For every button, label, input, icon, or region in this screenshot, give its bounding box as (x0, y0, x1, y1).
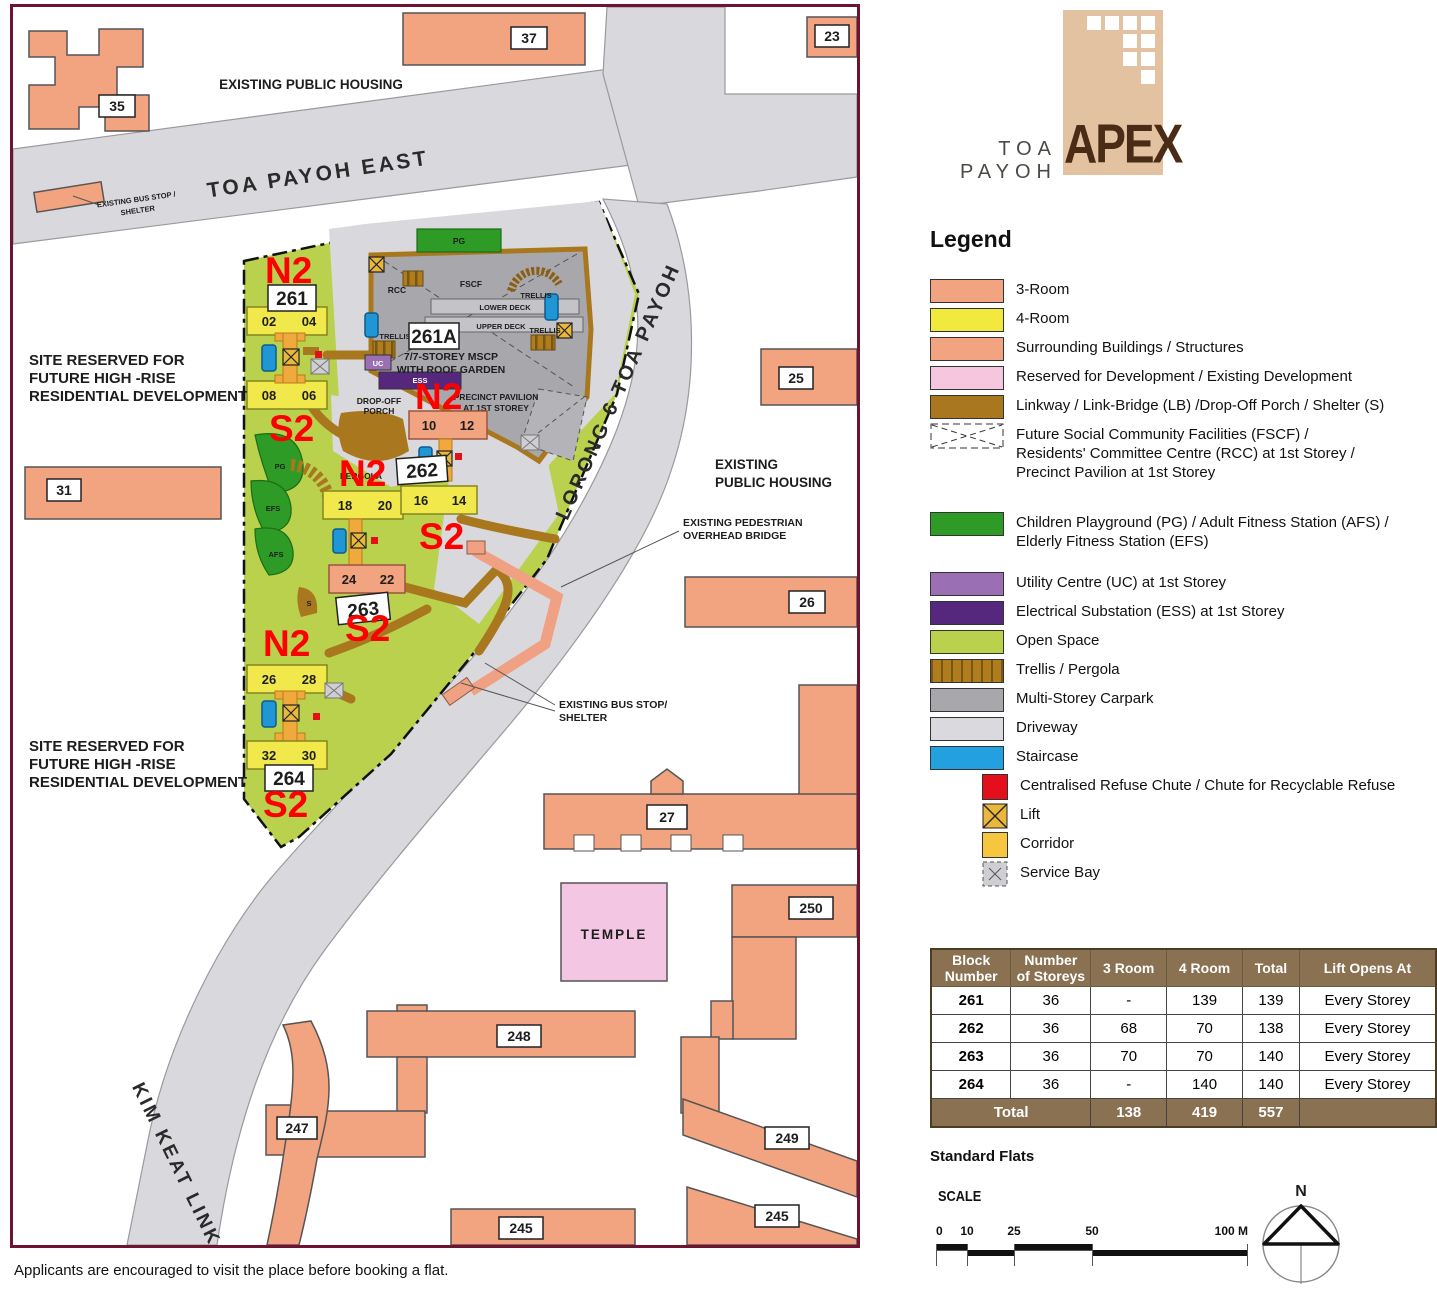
pg-label: PG (275, 462, 286, 471)
legend-item-surrounding: Surrounding Buildings / Structures (930, 336, 1436, 365)
uc-label: UC (373, 359, 384, 368)
north-arrow: N (1252, 1180, 1352, 1290)
refuse-chute-icon (313, 713, 320, 720)
swatch-fscf-dashed-icon (930, 423, 1004, 449)
svg-text:262: 262 (406, 460, 439, 483)
svg-text:EXISTING BUS STOP/: EXISTING BUS STOP/ (559, 699, 667, 711)
building-37-chip: 37 (511, 27, 547, 49)
legend-item-trellis: Trellis / Pergola (930, 658, 1436, 687)
flat-count-table: Block Number Number of Storeys 3 Room 4 … (930, 948, 1437, 1128)
unit-22: 22 (380, 572, 394, 587)
legend-item-uc: Utility Centre (UC) at 1st Storey (930, 571, 1436, 600)
unit-06: 06 (302, 388, 316, 403)
svg-text:250: 250 (799, 900, 823, 916)
legend-item-staircase: Staircase (930, 745, 1436, 774)
svg-text:OVERHEAD BRIDGE: OVERHEAD BRIDGE (683, 530, 786, 542)
afs-label: AFS (269, 550, 284, 559)
trellis-label: TRELLIS (379, 332, 410, 341)
swatch-trellis (930, 659, 1004, 683)
building-245-right-chip: 245 (755, 1205, 799, 1227)
scale-bar: 0 10 25 50 100 M (936, 1224, 1248, 1270)
header-block-number: Block Number (931, 949, 1011, 987)
site-plan-map: FSCF RCC TRELLIS LOWER DECK UPPER DECK T… (10, 4, 860, 1248)
rcc-label: RCC (388, 285, 406, 295)
unit-20: 20 (378, 498, 392, 513)
site-reserved-label-upper: SITE RESERVED FOR FUTURE HIGH -RISE RESI… (29, 352, 247, 405)
building-248-chip: 248 (497, 1025, 541, 1047)
legend-item-playground: Children Playground (PG) / Adult Fitness… (930, 511, 1436, 571)
logo-name: APEX (1064, 112, 1164, 176)
building-27-chip: 27 (647, 805, 687, 829)
unit-08: 08 (262, 388, 276, 403)
swatch-linkway (930, 395, 1004, 419)
svg-text:27: 27 (659, 809, 675, 825)
staircase-icon (262, 345, 276, 371)
logo-prefix: TOA PAYOH (905, 138, 1057, 184)
legend-item-ess: Electrical Substation (ESS) at 1st Store… (930, 600, 1436, 629)
legend-item-linkway: Linkway / Link-Bridge (LB) /Drop-Off Por… (930, 394, 1436, 423)
svg-text:37: 37 (521, 30, 537, 46)
svg-text:DROP-OFF: DROP-OFF (357, 396, 401, 406)
svg-text:SITE RESERVED FOR: SITE RESERVED FOR (29, 352, 185, 369)
svg-text:261: 261 (276, 289, 308, 310)
svg-text:PUBLIC HOUSING: PUBLIC HOUSING (715, 475, 832, 490)
legend-item-driveway: Driveway (930, 716, 1436, 745)
svg-text:FUTURE HIGH -RISE: FUTURE HIGH -RISE (29, 370, 176, 387)
red-label-s2: S2 (419, 516, 464, 557)
red-label-n2: N2 (265, 250, 312, 291)
pg-label: PG (453, 236, 466, 246)
legend: 3-Room 4-Room Surrounding Buildings / St… (930, 278, 1436, 890)
svg-text:SITE RESERVED FOR: SITE RESERVED FOR (29, 738, 185, 755)
svg-text:EXISTING PEDESTRIAN: EXISTING PEDESTRIAN (683, 517, 803, 529)
temple-label: TEMPLE (581, 927, 648, 942)
svg-text:249: 249 (775, 1130, 799, 1146)
swatch-mscp (930, 688, 1004, 712)
lower-deck-label: LOWER DECK (479, 303, 531, 312)
swatch-uc (930, 572, 1004, 596)
efs-label: EFS (266, 504, 281, 513)
scale-tick-100m: 100 M (1215, 1224, 1248, 1238)
pedestrian-bridge-label: EXISTING PEDESTRIAN OVERHEAD BRIDGE (683, 517, 803, 542)
mscp-label-line2: WITH ROOF GARDEN (397, 364, 506, 376)
swatch-open-space (930, 630, 1004, 654)
svg-text:SHELTER: SHELTER (559, 712, 608, 724)
swatch-surrounding (930, 337, 1004, 361)
scale-tick-25: 25 (1007, 1224, 1020, 1238)
unit-26: 26 (262, 672, 276, 687)
table-row: 262366870138Every Storey (931, 1015, 1436, 1043)
service-bay-icon (521, 435, 539, 450)
legend-item-open-space: Open Space (930, 629, 1436, 658)
legend-item-mscp: Multi-Storey Carpark (930, 687, 1436, 716)
scale-tick-50: 50 (1085, 1224, 1098, 1238)
unit-04: 04 (302, 314, 317, 329)
precinct-pavilion-line1: PRECINCT PAVILION (454, 392, 539, 402)
swatch-corridor (982, 832, 1008, 858)
swatch-staircase (930, 746, 1004, 770)
logo-squares-icon (1063, 10, 1163, 90)
table-row: 26436-140140Every Storey (931, 1071, 1436, 1099)
staircase-icon (333, 529, 346, 553)
header-lift-opens-at: Lift Opens At (1299, 949, 1436, 987)
site-reserved-label-lower: SITE RESERVED FOR FUTURE HIGH -RISE RESI… (29, 738, 247, 791)
building-25-chip: 25 (779, 367, 813, 389)
staircase-icon (262, 701, 276, 727)
svg-text:RESIDENTIAL DEVELOPMENT: RESIDENTIAL DEVELOPMENT (29, 774, 247, 791)
unit-30: 30 (302, 748, 316, 763)
building-26-chip: 26 (789, 591, 825, 613)
swatch-lift-x-icon (982, 803, 1008, 829)
north-label: N (1295, 1183, 1307, 1200)
scale-tick-0: 0 (936, 1224, 943, 1238)
building-250-chip: 250 (789, 897, 833, 919)
mscp-label-line1: 7/7-STOREY MSCP (404, 351, 498, 363)
building-23-chip: 23 (815, 25, 849, 47)
legend-title: Legend (930, 226, 1012, 253)
swatch-reserved (930, 366, 1004, 390)
svg-text:245: 245 (765, 1208, 789, 1224)
red-label-s2: S2 (345, 608, 390, 649)
unit-14: 14 (452, 493, 467, 508)
bus-stop-bridge-label: EXISTING BUS STOP/ SHELTER (559, 699, 667, 724)
unit-32: 32 (262, 748, 276, 763)
lift-icon (283, 349, 299, 365)
trellis-box-right (531, 335, 555, 350)
shelter-box (403, 271, 423, 286)
s-label: S (306, 599, 311, 608)
lift-icon (283, 705, 299, 721)
legend-item-3-room: 3-Room (930, 278, 1436, 307)
svg-text:25: 25 (788, 370, 804, 386)
trellis-label: TRELLIS (520, 291, 551, 300)
block-261a-label: 261A (411, 327, 457, 348)
swatch-4-room (930, 308, 1004, 332)
scale-label: SCALE (938, 1188, 981, 1205)
building-249-chip: 249 (765, 1127, 809, 1149)
trellis-label: TRELLIS (529, 326, 560, 335)
block-262-chip: 262 (396, 455, 448, 484)
legend-item-reserved: Reserved for Development / Existing Deve… (930, 365, 1436, 394)
scale-tick-10: 10 (960, 1224, 973, 1238)
legend-item-lift: Lift (930, 803, 1436, 832)
red-label-n2: N2 (339, 453, 386, 494)
service-bay-icon (311, 359, 329, 374)
refuse-chute-icon (371, 537, 378, 544)
footer-note: Applicants are encouraged to visit the p… (14, 1262, 448, 1279)
svg-text:31: 31 (56, 482, 72, 498)
lift-icon (351, 533, 366, 548)
unit-24: 24 (342, 572, 357, 587)
legend-item-4-room: 4-Room (930, 307, 1436, 336)
swatch-service-bay-icon (982, 861, 1008, 887)
svg-text:PORCH: PORCH (364, 406, 395, 416)
standard-flats-label: Standard Flats (930, 1148, 1034, 1165)
table-header-row: Block Number Number of Storeys 3 Room 4 … (931, 949, 1436, 987)
unit-18: 18 (338, 498, 352, 513)
table-row: 263367070140Every Storey (931, 1043, 1436, 1071)
building-247-chip: 247 (277, 1117, 317, 1139)
red-label-n2: N2 (263, 623, 310, 664)
header-4-room: 4 Room (1167, 949, 1243, 987)
site-plan-svg: FSCF RCC TRELLIS LOWER DECK UPPER DECK T… (13, 7, 857, 1245)
svg-text:FUTURE HIGH -RISE: FUTURE HIGH -RISE (29, 756, 176, 773)
red-label-n2: N2 (415, 376, 462, 417)
building-35-chip: 35 (99, 95, 135, 117)
lift-icon (369, 257, 384, 272)
refuse-chute-icon (455, 453, 462, 460)
unit-28: 28 (302, 672, 316, 687)
svg-text:248: 248 (507, 1028, 531, 1044)
fscf-label: FSCF (460, 279, 482, 289)
header-3-room: 3 Room (1091, 949, 1167, 987)
legend-item-corridor: Corridor (930, 832, 1436, 861)
building-31-chip: 31 (47, 479, 81, 501)
swatch-refuse-chute (982, 774, 1008, 800)
unit-10: 10 (422, 418, 436, 433)
legend-item-service-bay: Service Bay (930, 861, 1436, 890)
staircase-icon (365, 313, 378, 337)
existing-public-housing-top-label: EXISTING PUBLIC HOUSING (219, 77, 403, 92)
unit-02: 02 (262, 314, 276, 329)
svg-text:245: 245 (509, 1220, 533, 1236)
table-row: 26136-139139Every Storey (931, 987, 1436, 1015)
red-label-s2: S2 (263, 784, 308, 825)
legend-item-fscf: Future Social Community Facilities (FSCF… (930, 423, 1436, 511)
building-26 (685, 577, 857, 627)
legend-item-refuse: Centralised Refuse Chute / Chute for Rec… (930, 774, 1436, 803)
existing-public-housing-right-label: EXISTING PUBLIC HOUSING (715, 457, 832, 490)
swatch-3-room (930, 279, 1004, 303)
header-total: Total (1242, 949, 1299, 987)
building-27-arm (799, 685, 857, 797)
svg-text:247: 247 (285, 1120, 309, 1136)
svg-text:RESIDENTIAL DEVELOPMENT: RESIDENTIAL DEVELOPMENT (29, 388, 247, 405)
svg-text:EXISTING: EXISTING (715, 457, 778, 472)
svg-text:26: 26 (799, 594, 815, 610)
block-261a-chip: 261A (409, 323, 459, 349)
service-bay-icon (325, 683, 343, 698)
building-37 (403, 13, 585, 65)
svg-text:23: 23 (824, 28, 840, 44)
upper-deck-label: UPPER DECK (476, 322, 526, 331)
svg-text:35: 35 (109, 98, 125, 114)
swatch-playground (930, 512, 1004, 536)
red-label-s2: S2 (269, 408, 314, 449)
unit-12: 12 (460, 418, 474, 433)
refuse-chute-icon (315, 351, 322, 358)
swatch-ess (930, 601, 1004, 625)
swatch-driveway (930, 717, 1004, 741)
building-245-left-chip: 245 (499, 1217, 543, 1239)
table-total-row: Total138419557 (931, 1099, 1436, 1128)
unit-16: 16 (414, 493, 428, 508)
header-number-of-storeys: Number of Storeys (1011, 949, 1091, 987)
